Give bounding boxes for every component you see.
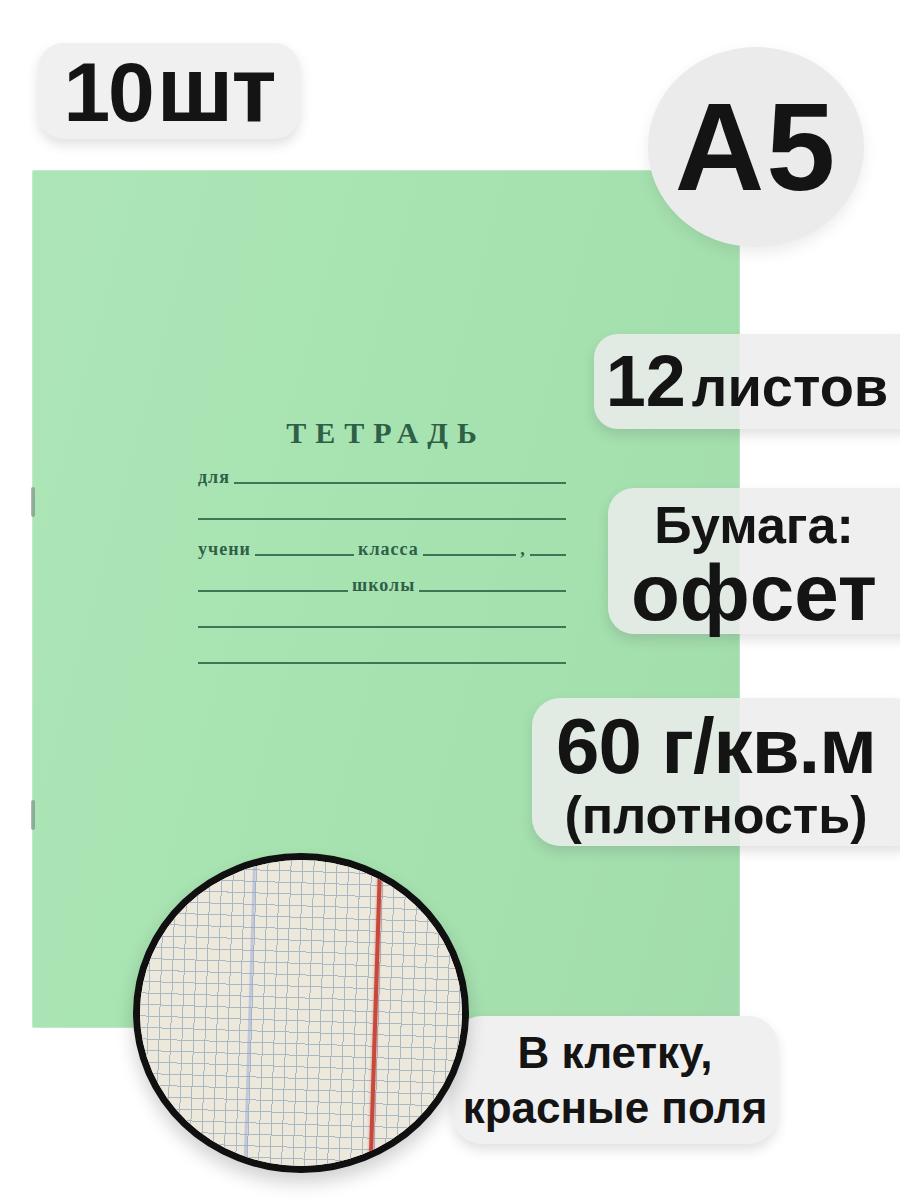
staple-icon xyxy=(31,487,35,517)
sheets-value: 12 xyxy=(606,334,686,428)
form-row-blank xyxy=(198,632,566,668)
form-row-blank xyxy=(198,596,566,632)
quantity-value: 10 xyxy=(63,46,152,138)
label-school: школы xyxy=(348,576,419,596)
sheets-unit: листов xyxy=(692,354,888,419)
format-badge: A5 xyxy=(648,47,864,247)
product-photo: ТЕТРАДЬ для учени класса , школы xyxy=(0,0,900,1200)
ruling-badge: В клетку, красные поля xyxy=(452,1016,778,1144)
form-row-for: для xyxy=(198,452,566,488)
paper-crease xyxy=(241,853,258,1173)
sheets-badge: 12 листов xyxy=(594,334,900,429)
form-row-blank xyxy=(198,488,566,524)
density-badge: 60 г/кв.м (плотность) xyxy=(532,698,900,846)
ruling-line1: В клетку, xyxy=(518,1025,713,1080)
label-class: класса xyxy=(354,540,423,560)
paper-label: Бумага: xyxy=(654,496,854,554)
paper-value: офсет xyxy=(631,554,877,632)
form-row-school: школы xyxy=(198,560,566,596)
density-value: 60 г/кв.м xyxy=(556,704,876,788)
squared-paper xyxy=(133,853,469,1173)
staple-icon xyxy=(31,800,35,830)
paper-magnifier-inset xyxy=(133,853,469,1173)
blank-line xyxy=(423,554,516,556)
quantity-badge: 10 шт xyxy=(38,43,300,139)
red-margin-line xyxy=(366,853,384,1173)
blank-line xyxy=(198,518,566,520)
blank-line xyxy=(198,590,348,592)
density-note: (плотность) xyxy=(564,788,867,842)
label-separator: , xyxy=(516,540,530,560)
label-for: для xyxy=(198,468,234,488)
cover-form: для учени класса , школы xyxy=(198,452,566,668)
blank-line xyxy=(234,482,566,484)
quantity-unit: шт xyxy=(157,43,275,135)
blank-line xyxy=(419,590,566,592)
blank-line xyxy=(530,554,566,556)
blank-line xyxy=(198,626,566,628)
blank-line xyxy=(255,554,354,556)
ruling-line2: красные поля xyxy=(463,1080,768,1135)
blank-line xyxy=(198,662,566,664)
label-student: учени xyxy=(198,540,255,560)
paper-type-badge: Бумага: офсет xyxy=(608,488,900,634)
form-row-student-class: учени класса , xyxy=(198,524,566,560)
